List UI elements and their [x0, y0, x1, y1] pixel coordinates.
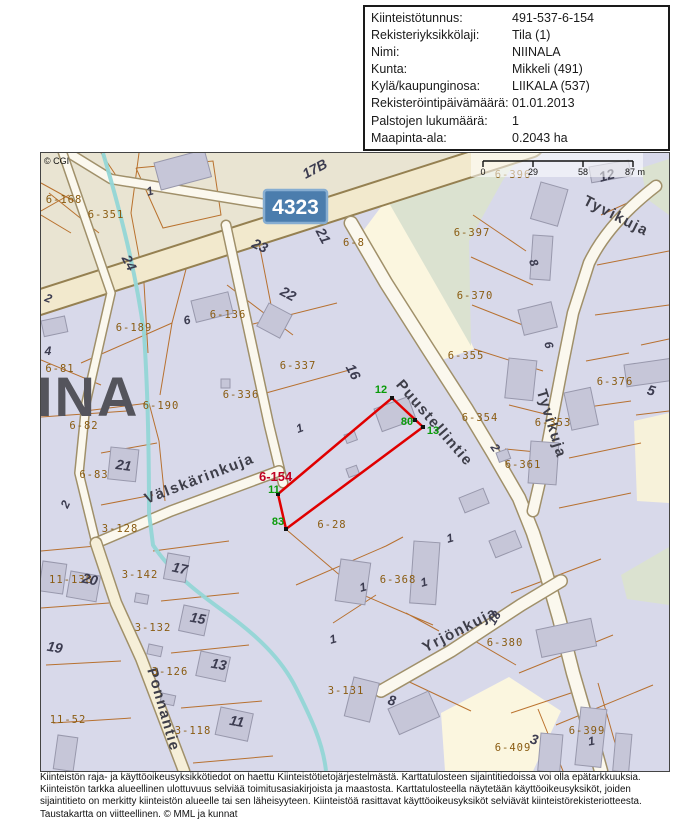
house-number: 19: [46, 638, 64, 656]
map-canvas: INA Puustellintie Tyvikuja Tyvikuja Väls…: [41, 153, 669, 771]
parcel-label: 6-397: [454, 227, 491, 239]
parcel-label: 3-142: [122, 569, 159, 581]
row-value: Mikkeli (491): [512, 61, 583, 78]
scale-tick-label: 29: [528, 167, 538, 177]
building: [613, 733, 632, 771]
building: [505, 358, 537, 401]
row-value: Tila (1): [512, 27, 550, 44]
row-value: 01.01.2013: [512, 95, 575, 112]
row-value: 1: [512, 113, 519, 130]
table-row: Kiinteistötunnus:491-537-6-154: [365, 10, 668, 27]
table-row: Kylä/kaupunginosa:LIIKALA (537): [365, 78, 668, 95]
parcel-label: 6-370: [457, 290, 494, 302]
parcel-label: 6-8: [343, 237, 365, 249]
road-number-sign: 4323: [264, 190, 327, 223]
property-info-table: Kiinteistötunnus:491-537-6-154 Rekisteri…: [363, 5, 670, 151]
parcel-label: 6-337: [280, 360, 317, 372]
parcel-label: 6-336: [223, 389, 260, 401]
disclaimer-line: sijaintitieto on merkitty kiinteistön al…: [40, 796, 674, 808]
row-label: Rekisteröintipäivämäärä:: [365, 95, 512, 112]
parcel-label: 6-409: [495, 742, 532, 754]
parcel-label: 6-353: [535, 417, 572, 429]
parcel-label: 6-354: [462, 412, 499, 424]
scale-tick-label: 0: [480, 167, 485, 177]
building: [134, 593, 148, 604]
target-parcel-label: 6-154: [259, 469, 293, 484]
building: [221, 379, 230, 388]
parcel-label: 6-190: [143, 400, 180, 412]
row-label: Nimi:: [365, 44, 512, 61]
cadastral-map: INA Puustellintie Tyvikuja Tyvikuja Väls…: [40, 152, 670, 772]
building: [53, 735, 78, 771]
house-number: 15: [189, 609, 207, 627]
table-row: Rekisteröintipäivämäärä:01.01.2013: [365, 95, 668, 112]
building: [410, 541, 440, 605]
row-label: Kunta:: [365, 61, 512, 78]
parcel-label: 3-131: [328, 685, 365, 697]
table-row: Nimi:NIINALA: [365, 44, 668, 61]
parcel-label: 6-83: [79, 469, 108, 481]
row-label: Kylä/kaupunginosa:: [365, 78, 512, 95]
boundary-point-label: 13: [427, 425, 439, 437]
house-number: 4: [44, 344, 52, 358]
boundary-point-label: 80: [401, 416, 413, 428]
parcel-label: 6-168: [46, 194, 83, 206]
parcel-label: 6-189: [116, 322, 153, 334]
row-label: Rekisteriyksikkölaji:: [365, 27, 512, 44]
parcel-label: 6-82: [69, 420, 98, 432]
parcel-label: 6-81: [45, 363, 74, 375]
building: [147, 644, 163, 657]
row-label: Kiinteistötunnus:: [365, 10, 512, 27]
house-number: 11: [228, 712, 245, 730]
parcel-label: 6-351: [88, 209, 125, 221]
scale-bar: 0 29 58 87 m: [471, 153, 645, 177]
map-disclaimer: Kiinteistön raja- ja käyttöoikeusyksikkö…: [40, 772, 674, 821]
table-row: Rekisteriyksikkölaji:Tila (1): [365, 27, 668, 44]
row-value: NIINALA: [512, 44, 561, 61]
parcel-label: 11-52: [50, 714, 87, 726]
disclaimer-line: Taustakartta on viitteellinen. © MML ja …: [40, 809, 674, 821]
parcel-label: 3-118: [175, 725, 212, 737]
table-row: Maapinta-ala:0.2043 ha: [365, 130, 668, 147]
parcel-label: 6-355: [448, 350, 485, 362]
parcel-label: 3-126: [152, 666, 189, 678]
row-value: 0.2043 ha: [512, 130, 568, 147]
parcel-label: 3-132: [135, 622, 172, 634]
table-row: Palstojen lukumäärä:1: [365, 113, 668, 130]
parcel-label: 6-28: [317, 519, 346, 531]
boundary-point-label: 83: [272, 516, 284, 528]
house-number: 20: [80, 569, 100, 588]
scale-tick-label: 87 m: [625, 167, 645, 177]
parcel-label: 6-361: [505, 459, 542, 471]
table-row: Kunta:Mikkeli (491): [365, 61, 668, 78]
row-value: 491-537-6-154: [512, 10, 594, 27]
row-value: LIIKALA (537): [512, 78, 590, 95]
house-number: 13: [210, 655, 228, 673]
parcel-label: 6-368: [380, 574, 417, 586]
building: [530, 235, 553, 280]
parcel-label: 6-376: [597, 376, 634, 388]
disclaimer-line: Kiinteistön tarkka alueellinen ulottuvuu…: [40, 784, 674, 796]
boundary-point-label: 12: [375, 384, 387, 396]
row-label: Maapinta-ala:: [365, 130, 512, 147]
map-copyright: © CGI: [44, 156, 69, 166]
area-yellow-right: [634, 413, 669, 503]
parcel-label: 3-128: [102, 523, 139, 535]
parcel-label: 6-136: [210, 309, 247, 321]
building: [538, 733, 563, 771]
house-number: 21: [114, 456, 133, 474]
road-number-text: 4323: [272, 196, 319, 219]
row-label: Palstojen lukumäärä:: [365, 113, 512, 130]
building: [335, 559, 371, 605]
disclaimer-line: Kiinteistön raja- ja käyttöoikeusyksikkö…: [40, 772, 674, 784]
parcel-label: 6-380: [487, 637, 524, 649]
boundary-point-label: 11: [268, 484, 280, 496]
scale-tick-label: 58: [578, 167, 588, 177]
